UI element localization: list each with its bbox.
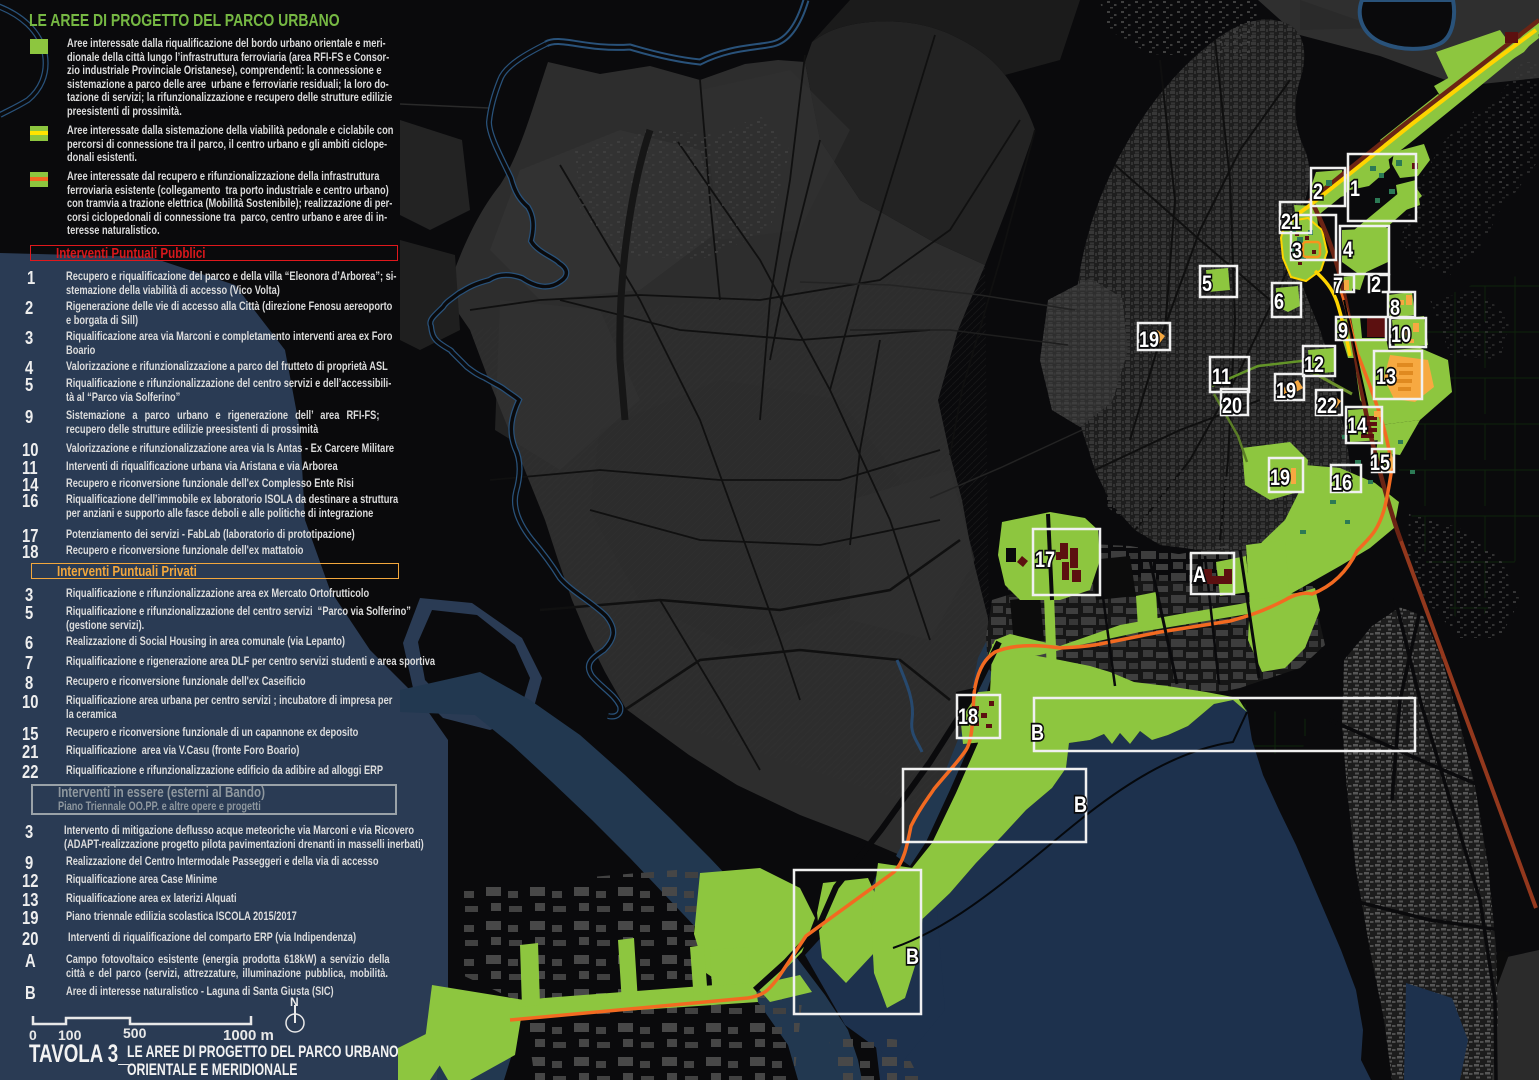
svg-text:7: 7	[1333, 274, 1343, 298]
svg-text:18: 18	[958, 705, 978, 729]
svg-text:1: 1	[1350, 177, 1360, 201]
svg-text:22: 22	[1317, 394, 1337, 418]
svg-text:14: 14	[1347, 414, 1368, 438]
svg-text:12: 12	[1304, 353, 1324, 377]
svg-text:4: 4	[1343, 238, 1354, 262]
svg-text:2: 2	[1371, 273, 1381, 297]
svg-text:B: B	[1031, 721, 1044, 745]
svg-text:N: N	[290, 995, 299, 1009]
svg-text:B: B	[906, 945, 919, 969]
svg-text:21: 21	[1281, 210, 1301, 234]
svg-text:20: 20	[1222, 394, 1242, 418]
svg-text:3: 3	[1292, 239, 1302, 263]
svg-text:500: 500	[123, 1025, 147, 1041]
svg-text:16: 16	[1332, 471, 1352, 495]
svg-text:10: 10	[1391, 323, 1411, 347]
svg-text:5: 5	[1202, 272, 1212, 296]
svg-text:6: 6	[1274, 290, 1284, 314]
svg-text:19: 19	[1276, 379, 1296, 403]
svg-text:19: 19	[1270, 466, 1290, 490]
svg-text:17: 17	[1035, 548, 1055, 572]
svg-text:15: 15	[1370, 451, 1390, 475]
svg-text:13: 13	[1376, 365, 1396, 389]
svg-text:2: 2	[1313, 180, 1323, 204]
svg-text:9: 9	[1338, 319, 1348, 343]
svg-text:11: 11	[1212, 365, 1231, 389]
svg-text:8: 8	[1390, 296, 1400, 320]
svg-text:19: 19	[1139, 328, 1159, 352]
svg-text:A: A	[1193, 563, 1206, 587]
svg-text:B: B	[1074, 793, 1087, 817]
